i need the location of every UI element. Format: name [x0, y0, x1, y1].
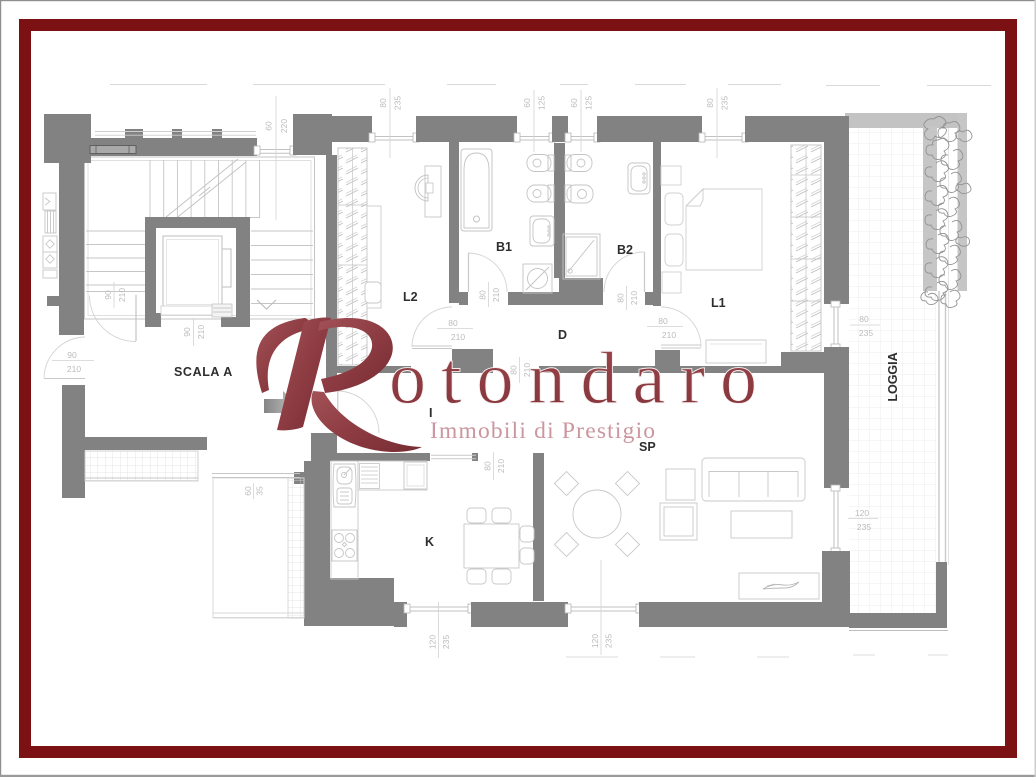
svg-text:235: 235: [604, 634, 614, 648]
svg-text:235: 235: [441, 635, 451, 649]
svg-text:80: 80: [705, 98, 715, 108]
svg-text:80: 80: [859, 314, 869, 324]
svg-text:K: K: [425, 535, 434, 549]
svg-text:90: 90: [182, 327, 192, 337]
svg-text:235: 235: [720, 96, 730, 110]
svg-text:210: 210: [67, 364, 81, 374]
svg-text:80: 80: [483, 461, 493, 471]
svg-text:LOGGIA: LOGGIA: [886, 352, 900, 401]
svg-text:B1: B1: [496, 240, 512, 254]
svg-text:235: 235: [859, 328, 873, 338]
svg-text:60: 60: [243, 486, 253, 496]
svg-text:60: 60: [264, 121, 274, 131]
svg-text:210: 210: [491, 288, 501, 302]
svg-text:120: 120: [590, 634, 600, 648]
svg-text:80: 80: [448, 318, 458, 328]
svg-text:80: 80: [478, 290, 488, 300]
svg-text:90: 90: [103, 290, 113, 300]
svg-text:125: 125: [584, 96, 594, 110]
svg-text:235: 235: [857, 522, 871, 532]
svg-text:60: 60: [522, 98, 532, 108]
svg-text:235: 235: [393, 96, 403, 110]
svg-text:L1: L1: [711, 296, 726, 310]
svg-text:210: 210: [196, 325, 206, 339]
svg-text:60: 60: [569, 98, 579, 108]
svg-text:220: 220: [279, 119, 289, 133]
svg-text:L2: L2: [403, 290, 418, 304]
svg-text:210: 210: [496, 459, 506, 473]
svg-text:Immobili di Prestigio: Immobili di Prestigio: [430, 418, 656, 444]
svg-text:90: 90: [67, 350, 77, 360]
svg-text:80: 80: [658, 316, 668, 326]
svg-text:35: 35: [255, 486, 265, 496]
svg-text:210: 210: [629, 291, 639, 305]
svg-text:80: 80: [378, 98, 388, 108]
svg-text:120: 120: [428, 635, 438, 649]
svg-text:otondaro: otondaro: [389, 338, 772, 420]
svg-text:SCALA A: SCALA A: [174, 365, 233, 379]
svg-text:80: 80: [616, 293, 626, 303]
svg-text:210: 210: [117, 288, 127, 302]
svg-text:B2: B2: [617, 243, 633, 257]
svg-text:120: 120: [855, 508, 869, 518]
svg-text:125: 125: [537, 96, 547, 110]
